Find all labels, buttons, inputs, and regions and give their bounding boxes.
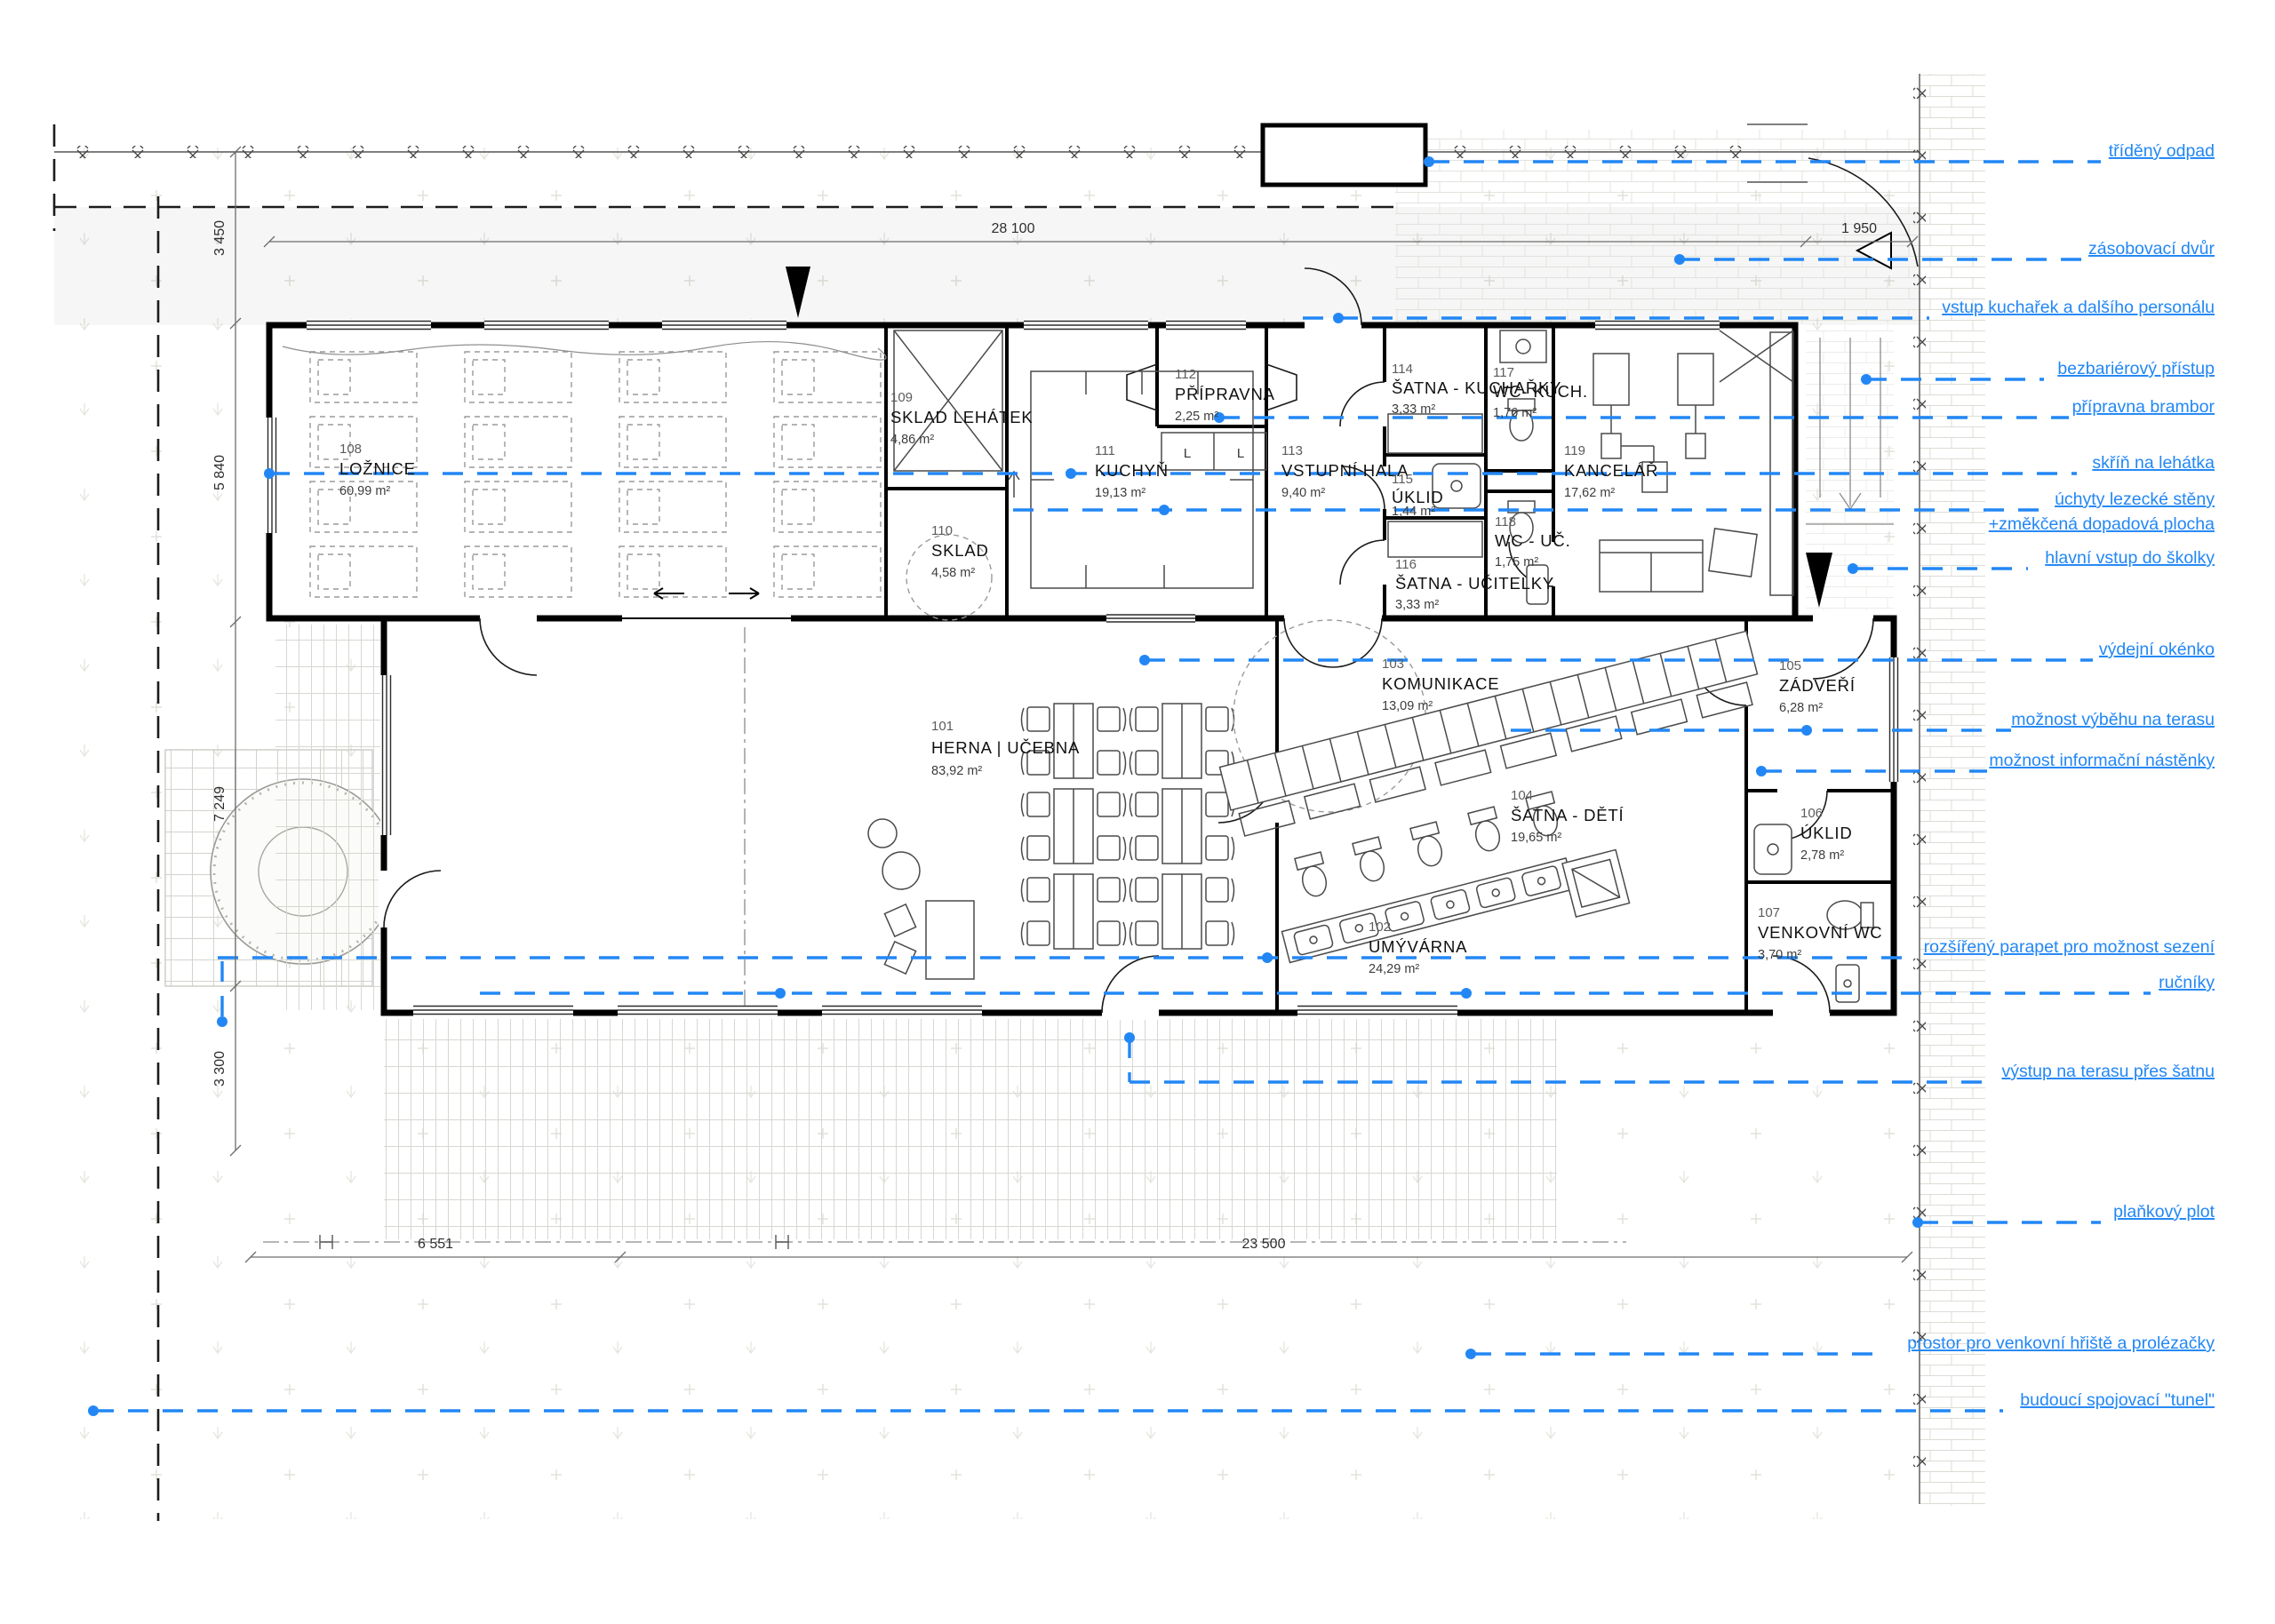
svg-text:LOŽNICE: LOŽNICE [339,459,416,478]
svg-text:28 100: 28 100 [992,221,1035,236]
svg-text:109: 109 [890,390,913,405]
callout-vystup-terasa: výstup na terasu přes šatnu [2001,1062,2215,1081]
svg-text:2,25 m²: 2,25 m² [1175,410,1218,424]
callout-parapet: rozšířený parapet pro možnost sezení [1924,937,2215,957]
svg-text:9,40 m²: 9,40 m² [1281,486,1325,500]
windows-south-wall [413,1004,1457,1016]
svg-text:3 300: 3 300 [212,1051,227,1087]
locker-label: L [1184,446,1191,461]
svg-text:VENKOVNÍ WC: VENKOVNÍ WC [1758,923,1882,942]
svg-text:17,62 m²: 17,62 m² [1564,486,1615,500]
callout-plankovy-plot: plaňkový plot [2113,1202,2215,1222]
svg-text:119: 119 [1564,443,1585,458]
svg-text:112: 112 [1175,367,1196,382]
svg-text:PŘÍPRAVNA: PŘÍPRAVNA [1175,385,1275,403]
svg-text:24,29 m²: 24,29 m² [1369,962,1419,976]
svg-text:5 840: 5 840 [212,455,227,490]
svg-text:1,44 m²: 1,44 m² [1392,505,1435,519]
svg-text:111: 111 [1095,443,1115,458]
svg-text:106: 106 [1800,806,1823,821]
callout-uchyty-line1: úchyty lezecké stěny [2055,490,2215,509]
svg-text:19,13 m²: 19,13 m² [1095,486,1145,500]
svg-text:60,99 m²: 60,99 m² [339,484,390,498]
svg-text:102: 102 [1369,919,1391,935]
svg-text:UMÝVÁRNA: UMÝVÁRNA [1369,937,1467,956]
svg-text:3,33 m²: 3,33 m² [1395,598,1439,612]
callout-pripravna-brambor: přípravna brambor [2072,397,2215,417]
svg-text:ÚKLID: ÚKLID [1800,824,1853,842]
floor-plan-sheet: L L [0,0,2275,1624]
svg-text:83,92 m²: 83,92 m² [931,764,982,778]
svg-text:101: 101 [931,719,954,734]
svg-text:103: 103 [1382,657,1404,672]
svg-text:3 450: 3 450 [212,220,227,256]
callout-hlavni-vstup: hlavní vstup do školky [2045,548,2215,568]
svg-text:4,86 m²: 4,86 m² [890,433,934,447]
svg-text:WC - UČ.: WC - UČ. [1495,531,1571,550]
svg-text:107: 107 [1758,905,1780,920]
svg-text:113: 113 [1281,443,1303,458]
svg-text:ŠATNA - UČITELKY: ŠATNA - UČITELKY [1395,574,1554,593]
callout-uchyty-line2: +změkčená dopadová plocha [1989,514,2215,534]
svg-text:VSTUPNÍ HALA: VSTUPNÍ HALA [1281,461,1409,480]
callout-vstup-kucharek: vstup kuchařek a dalšího personálu [1942,298,2215,317]
callout-trideny-odpad: tříděný odpad [2109,141,2215,161]
callout-zasobovaci-dvur: zásobovací dvůr [2088,239,2215,259]
svg-text:2,78 m²: 2,78 m² [1800,848,1844,863]
svg-text:7 249: 7 249 [212,786,227,822]
fence-x-marks-top [54,146,1747,158]
svg-text:13,09 m²: 13,09 m² [1382,699,1433,713]
svg-text:ZÁDVEŘÍ: ZÁDVEŘÍ [1779,676,1856,695]
callout-nastenky: možnost informační nástěnky [1989,751,2215,770]
svg-text:114: 114 [1392,362,1413,377]
uklid-106-sink [1754,824,1792,874]
svg-text:SKLAD: SKLAD [931,541,989,560]
callout-skrin-lehatka: skříň na lehátka [2092,453,2215,473]
deck-west [275,625,380,1010]
svg-text:116: 116 [1395,557,1417,572]
callout-rucniky: ručníky [2159,973,2215,992]
svg-text:3,70 m²: 3,70 m² [1758,948,1801,962]
svg-text:118: 118 [1495,514,1516,529]
svg-text:23 500: 23 500 [1242,1237,1286,1252]
svg-text:3,33 m²: 3,33 m² [1392,402,1435,417]
floor-plan-drawing: L L [0,0,2275,1624]
svg-text:HERNA | UČEBNA: HERNA | UČEBNA [931,738,1080,757]
callout-vydejni-okenko: výdejní okénko [2099,640,2215,659]
callout-tunel: budoucí spojovací "tunel" [2020,1390,2215,1410]
svg-text:SKLAD LEHÁTEK: SKLAD LEHÁTEK [890,408,1034,426]
svg-text:1,76 m²: 1,76 m² [1493,406,1537,420]
svg-text:105: 105 [1779,658,1801,673]
svg-text:1 950: 1 950 [1841,221,1877,236]
svg-text:108: 108 [339,442,362,457]
svg-text:19,65 m²: 19,65 m² [1511,831,1561,845]
svg-text:ÚKLID: ÚKLID [1392,488,1444,506]
svg-text:KUCHYŇ: KUCHYŇ [1095,461,1169,480]
svg-text:4,58 m²: 4,58 m² [931,566,975,580]
svg-text:6,28 m²: 6,28 m² [1779,701,1823,715]
svg-text:117: 117 [1493,365,1514,380]
fence-x-marks-right [1913,74,1926,1504]
locker-label: L [1237,446,1244,461]
svg-text:WC- KUCH.: WC- KUCH. [1493,382,1588,401]
deck-south [384,1019,1557,1239]
paving-strip-east [1920,74,1985,1506]
svg-text:115: 115 [1392,472,1413,487]
callout-hriste: prostor pro venkovní hřiště a prolézačky [1907,1333,2215,1353]
callout-bezbarierovy: bezbariérový přístup [2057,359,2215,378]
waste-container [1263,125,1425,185]
svg-text:110: 110 [931,523,953,538]
svg-text:6 551: 6 551 [418,1237,453,1252]
svg-text:104: 104 [1511,788,1533,803]
svg-text:1,75 m²: 1,75 m² [1495,555,1538,569]
callout-vybeh-terasa: možnost výběhu na terasu [2011,710,2215,729]
svg-text:KANCELÁŘ: KANCELÁŘ [1564,461,1658,480]
svg-text:KOMUNIKACE: KOMUNIKACE [1382,674,1499,693]
svg-text:ŠATNA - DĚTÍ: ŠATNA - DĚTÍ [1511,806,1624,824]
